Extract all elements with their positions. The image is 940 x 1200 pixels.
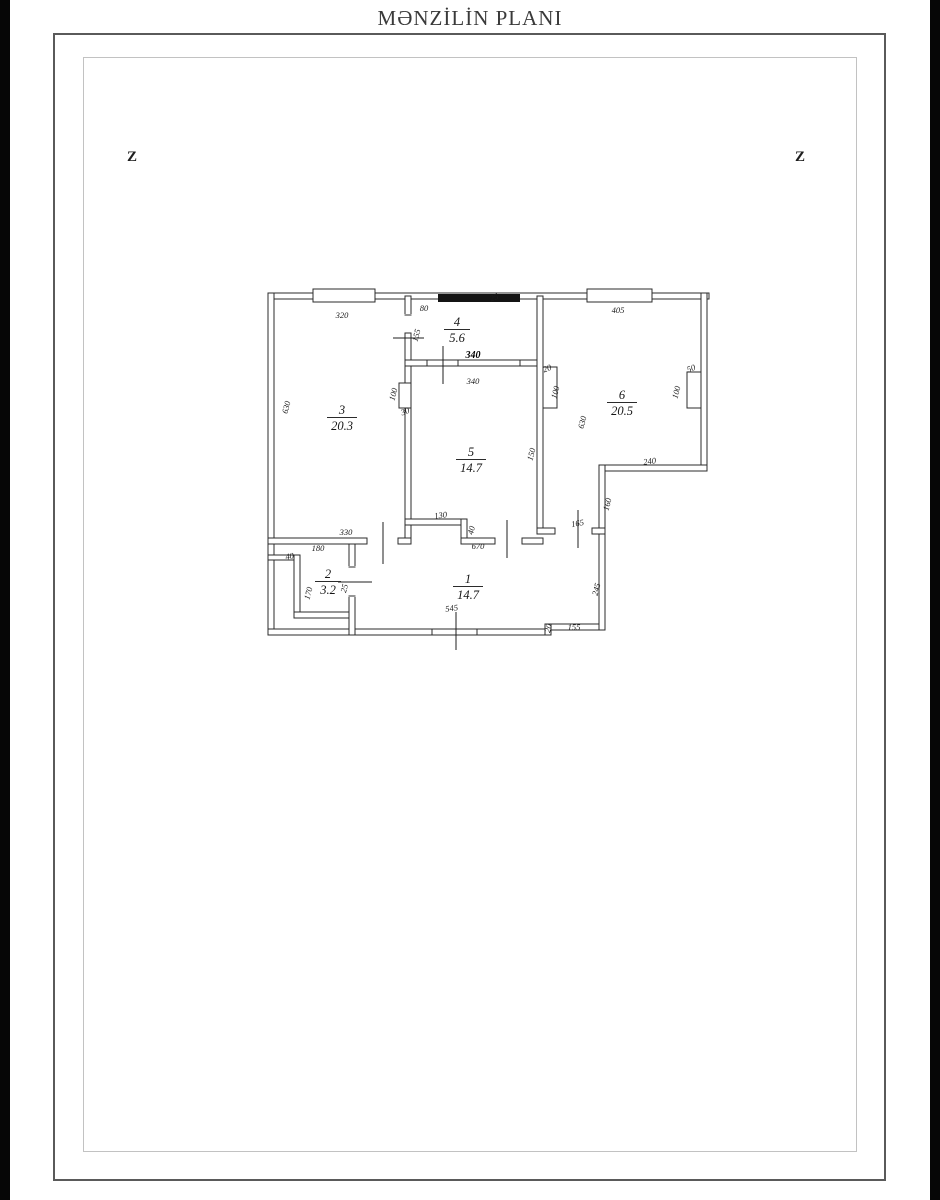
dimension-label: 100 bbox=[549, 384, 562, 400]
room-number: 4 bbox=[454, 315, 460, 329]
wall-segment bbox=[268, 293, 274, 634]
windows bbox=[313, 289, 652, 302]
window bbox=[587, 289, 652, 302]
room-number: 3 bbox=[338, 403, 345, 417]
wall-segment bbox=[537, 296, 543, 534]
room-area: 20.3 bbox=[331, 419, 353, 433]
bold-dimension-label: 340 bbox=[465, 350, 481, 361]
scanned-plan-page: { "page": { "title": "MƏNZİLİN PLANI" },… bbox=[0, 0, 940, 1200]
dimension-label: 155 bbox=[568, 622, 581, 632]
door-gap bbox=[495, 537, 522, 545]
wall-segment bbox=[599, 465, 605, 630]
wall-segment bbox=[268, 629, 551, 635]
dimension-label: 405 bbox=[612, 305, 625, 315]
room-label-2: 2 3.2 bbox=[315, 567, 341, 597]
dimension-label: 40 bbox=[284, 550, 295, 561]
room-label-3: 3 20.3 bbox=[327, 403, 357, 433]
window bbox=[313, 289, 375, 302]
room-number: 6 bbox=[619, 388, 626, 402]
wall-pilaster bbox=[399, 383, 411, 408]
dimension-label: 630 bbox=[280, 399, 293, 415]
dimension-label: 150 bbox=[525, 446, 538, 462]
room-area: 14.7 bbox=[457, 588, 480, 602]
dimension-label: 160 bbox=[601, 496, 614, 512]
dimension-label: 330 bbox=[339, 527, 354, 537]
room-area: 14.7 bbox=[460, 461, 483, 475]
dimension-label: 170 bbox=[302, 585, 315, 601]
dimension-label: 100 bbox=[387, 386, 400, 402]
room-number: 2 bbox=[325, 567, 331, 581]
wall-segment bbox=[599, 465, 707, 471]
room-area: 20.5 bbox=[611, 404, 633, 418]
door-gap bbox=[404, 314, 412, 333]
wall-segment bbox=[701, 293, 707, 471]
room-label-4: 4 5.6 bbox=[444, 315, 470, 345]
dimension-label: 240 bbox=[643, 455, 658, 467]
room-number: 5 bbox=[468, 445, 474, 459]
dimension-label: 320 bbox=[335, 310, 350, 320]
wall-segment bbox=[294, 555, 300, 617]
dimension-label: 80 bbox=[420, 303, 429, 313]
dimension-label: 180 bbox=[312, 543, 326, 553]
room-label-6: 6 20.5 bbox=[607, 388, 637, 418]
room-label-1: 1 14.7 bbox=[453, 572, 483, 602]
room-number: 1 bbox=[465, 572, 471, 586]
dimension-label: 630 bbox=[576, 414, 589, 430]
room-area: 5.6 bbox=[449, 331, 465, 345]
dimension-label: 670 bbox=[472, 541, 486, 551]
dimension-label: 100 bbox=[670, 384, 683, 400]
room-label-5: 5 14.7 bbox=[456, 445, 486, 475]
filled-wall-opening bbox=[438, 294, 520, 302]
dimension-label: 340 bbox=[466, 376, 481, 386]
dimension-label: 40 bbox=[465, 524, 477, 536]
wall-pilaster bbox=[687, 372, 701, 408]
wall-segment bbox=[294, 612, 355, 618]
dimension-label: 130 bbox=[434, 509, 449, 521]
floor-plan-drawing: 1 14.7 2 3.2 3 20.3 4 5.6 5 14.7 6 20.5 … bbox=[0, 0, 940, 1200]
dimension-label: 155 bbox=[410, 328, 423, 343]
room-area: 3.2 bbox=[319, 583, 336, 597]
dimension-label: 545 bbox=[445, 602, 459, 614]
